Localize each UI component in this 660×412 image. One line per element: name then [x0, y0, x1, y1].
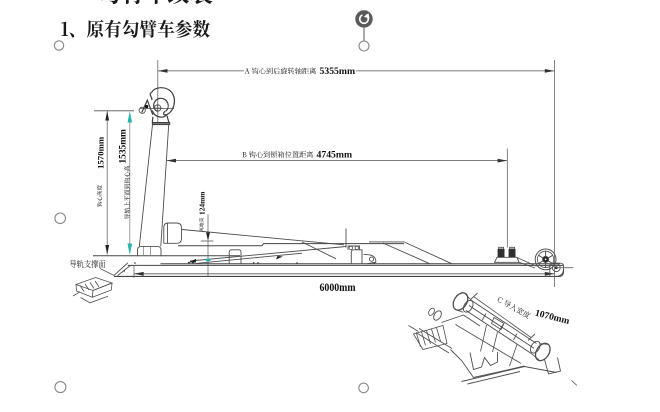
svg-text:124mm: 124mm [198, 191, 207, 215]
svg-text:1535mm: 1535mm [119, 129, 129, 164]
svg-text:4745mm: 4745mm [317, 150, 353, 161]
svg-text:6000mm: 6000mm [320, 281, 356, 294]
svg-text:1070mm: 1070mm [534, 308, 571, 327]
svg-text:5355mm: 5355mm [320, 66, 356, 77]
svg-text:1570mm: 1570mm [96, 136, 106, 169]
